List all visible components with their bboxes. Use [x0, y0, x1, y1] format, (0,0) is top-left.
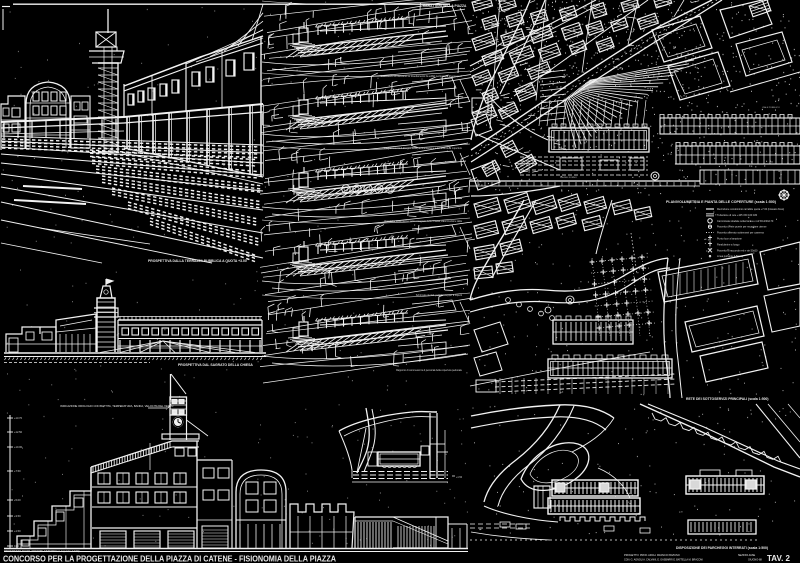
svg-text:CONCORSO PER LA PROGETTAZIONE: CONCORSO PER LA PROGETTAZIONE DELLA PIAZ… — [3, 555, 336, 563]
svg-text:+3.50: +3.50 — [14, 514, 21, 518]
svg-text:Pozzetto di rete purete per re: Pozzetto di rete purete per recapitare u… — [717, 226, 767, 229]
svg-text:PROSPETTIVA DAL SAGRATO DELLA: PROSPETTIVA DAL SAGRATO DELLA CHIESA — [178, 363, 253, 367]
svg-text:Rapporto di commessi tra il pe: Rapporto di commessi tra il percorso del… — [396, 369, 463, 372]
svg-text:Tubazione di rete +105 150 160: Tubazione di rete +105 150 160 180 — [717, 214, 758, 217]
svg-text:Recinzione condominio carrabil: Recinzione condominio carrabile quota +7… — [717, 208, 784, 211]
svg-text:DISPOSIZIONE DEI PARCHEGGI INT: DISPOSIZIONE DEI PARCHEGGI INTERRATI (sc… — [676, 546, 768, 550]
svg-text:Punto luce a lampione: Punto luce a lampione — [717, 238, 742, 241]
svg-text:+10.00: +10.00 — [14, 445, 23, 449]
svg-text:PLANIVOLUMETRIA E PIANTA DELLE: PLANIVOLUMETRIA E PIANTA DELLE COPERTURE… — [666, 200, 777, 204]
svg-text:GIUGNO-88: GIUGNO-88 — [748, 559, 762, 562]
svg-text:RETE DEI SOTTOSERVIZI PRINCIPA: RETE DEI SOTTOSERVIZI PRINCIPALI (scala … — [686, 397, 769, 401]
svg-text:INDICAZIONE OROLOGIO CON BATTI: INDICAZIONE OROLOGIO CON BATTITA, TEMPER… — [60, 404, 173, 408]
svg-text:+12.50: +12.50 — [14, 430, 23, 434]
svg-text:+1.50: +1.50 — [14, 529, 21, 533]
svg-text:+13.70: +13.70 — [14, 416, 23, 420]
svg-text:+7.50: +7.50 — [14, 469, 21, 473]
svg-text:Pozzetto di raccordo reti e vi: Pozzetto di raccordo reti e vie 50x50 — [717, 249, 758, 252]
svg-text:Camminata stradale sotterranea: Camminata stradale sotterranea e reti 50… — [717, 220, 774, 223]
svg-text:TAV. 2: TAV. 2 — [767, 554, 791, 563]
svg-text:SEZIONI-FASE: SEZIONI-FASE — [738, 554, 756, 557]
svg-text:Pozzetto afferrato sotterranei: Pozzetto afferrato sotterranei per caser… — [717, 232, 764, 235]
svg-text:VIA DEL FORNO: VIA DEL FORNO — [560, 176, 577, 179]
svg-text:PROGETTO: PROF. ARCH. FRANCO: PROGETTO: PROF. ARCH. FRANCO PAVIUSO — [624, 553, 680, 557]
svg-text:PROSPETTO DI DEL FRONTE ESTERN: PROSPETTO DI DEL FRONTE ESTERNO A-A (sca… — [4, 549, 80, 553]
svg-text:+1.50: +1.50 — [456, 476, 463, 479]
svg-text:VIALE PUBBLICO: VIALE PUBBLICO — [762, 106, 780, 109]
svg-text:PROSPETTIVA DALLA TERRAZZA PUB: PROSPETTIVA DALLA TERRAZZA PUBBLICA A QU… — [148, 259, 247, 263]
svg-text:+5.00: +5.00 — [14, 498, 21, 502]
svg-text:Parafulmine a fungo: Parafulmine a fungo — [717, 243, 740, 246]
svg-text:CON: G. AGNOLI A. CALVANI, E: CON: G. AGNOLI A. CALVANI, E. GASBARRI E… — [624, 559, 703, 562]
